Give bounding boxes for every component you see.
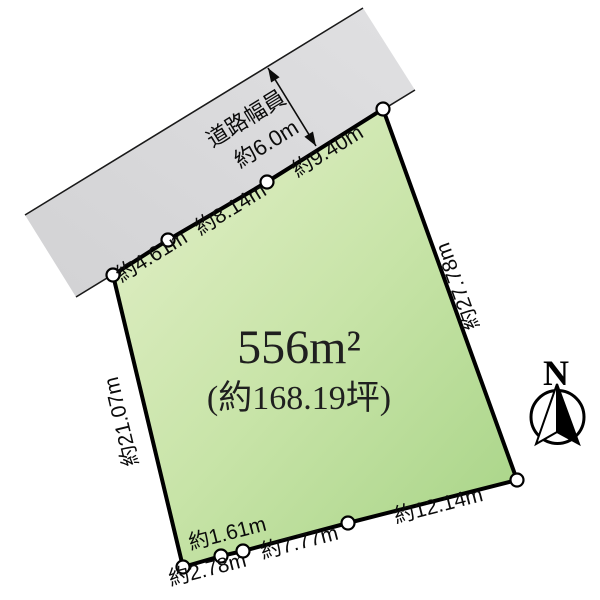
boundary-vertex <box>342 517 355 530</box>
dimension-label-left: 約21.07m <box>100 375 144 469</box>
boundary-vertex <box>377 103 390 116</box>
land-plot-diagram: 道路幅員 約6.0m 約4.61m 約8.14m 約9.40m 約27.78m … <box>0 0 600 600</box>
site-plan-svg: 道路幅員 約6.0m 約4.61m 約8.14m 約9.40m 約27.78m … <box>0 0 600 600</box>
north-compass: N <box>531 353 584 444</box>
area-tsubo-label: (約168.19坪) <box>207 379 391 417</box>
boundary-vertex <box>511 474 524 487</box>
area-sqm-label: 556m² <box>237 321 361 374</box>
